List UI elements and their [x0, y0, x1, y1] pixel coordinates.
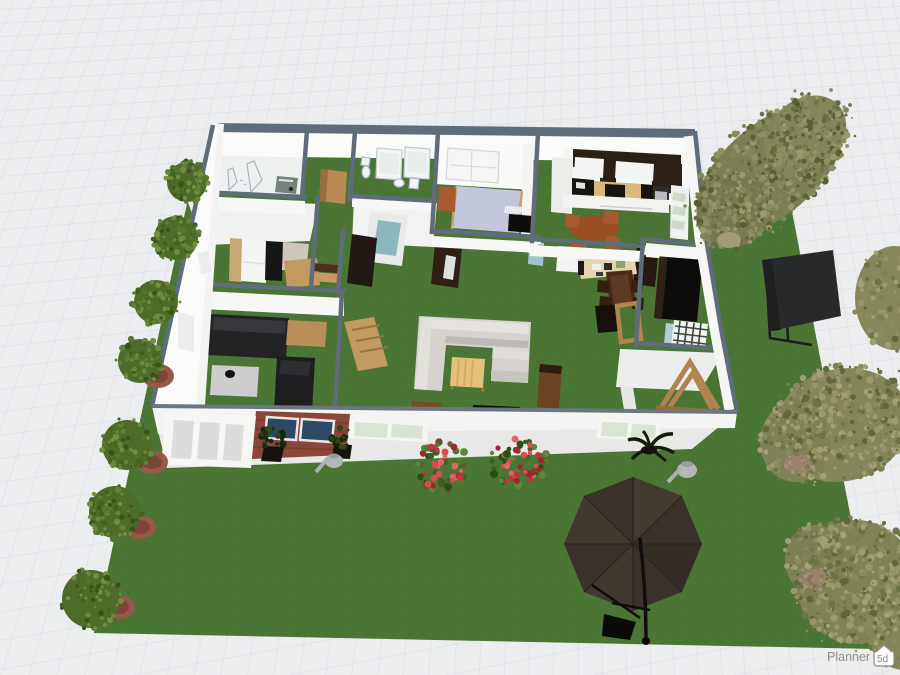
svg-text:Planner: Planner: [827, 650, 870, 664]
svg-text:5d: 5d: [877, 654, 888, 665]
